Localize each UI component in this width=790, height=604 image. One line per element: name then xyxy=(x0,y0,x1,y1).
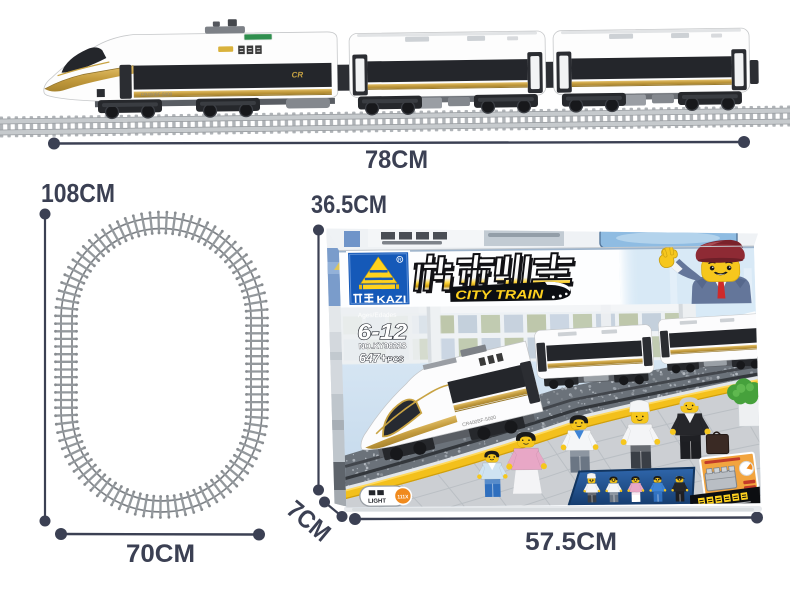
svg-text:36.5CM: 36.5CM xyxy=(311,191,387,219)
svg-text:70CM: 70CM xyxy=(126,540,195,568)
svg-text:R: R xyxy=(398,257,402,263)
svg-text:NO.KY98228: NO.KY98228 xyxy=(359,341,407,351)
svg-text:108CM: 108CM xyxy=(41,178,115,208)
svg-text:LIGHT: LIGHT xyxy=(368,499,386,505)
svg-text:CITY TRAIN: CITY TRAIN xyxy=(455,287,545,302)
svg-text:CR: CR xyxy=(292,70,304,79)
svg-text:KAZI: KAZI xyxy=(376,294,406,306)
svg-text:78CM: 78CM xyxy=(365,146,428,174)
svg-text:CR400BF-5000: CR400BF-5000 xyxy=(141,92,173,97)
svg-text:57.5CM: 57.5CM xyxy=(525,528,617,556)
svg-text:111X: 111X xyxy=(397,494,409,500)
